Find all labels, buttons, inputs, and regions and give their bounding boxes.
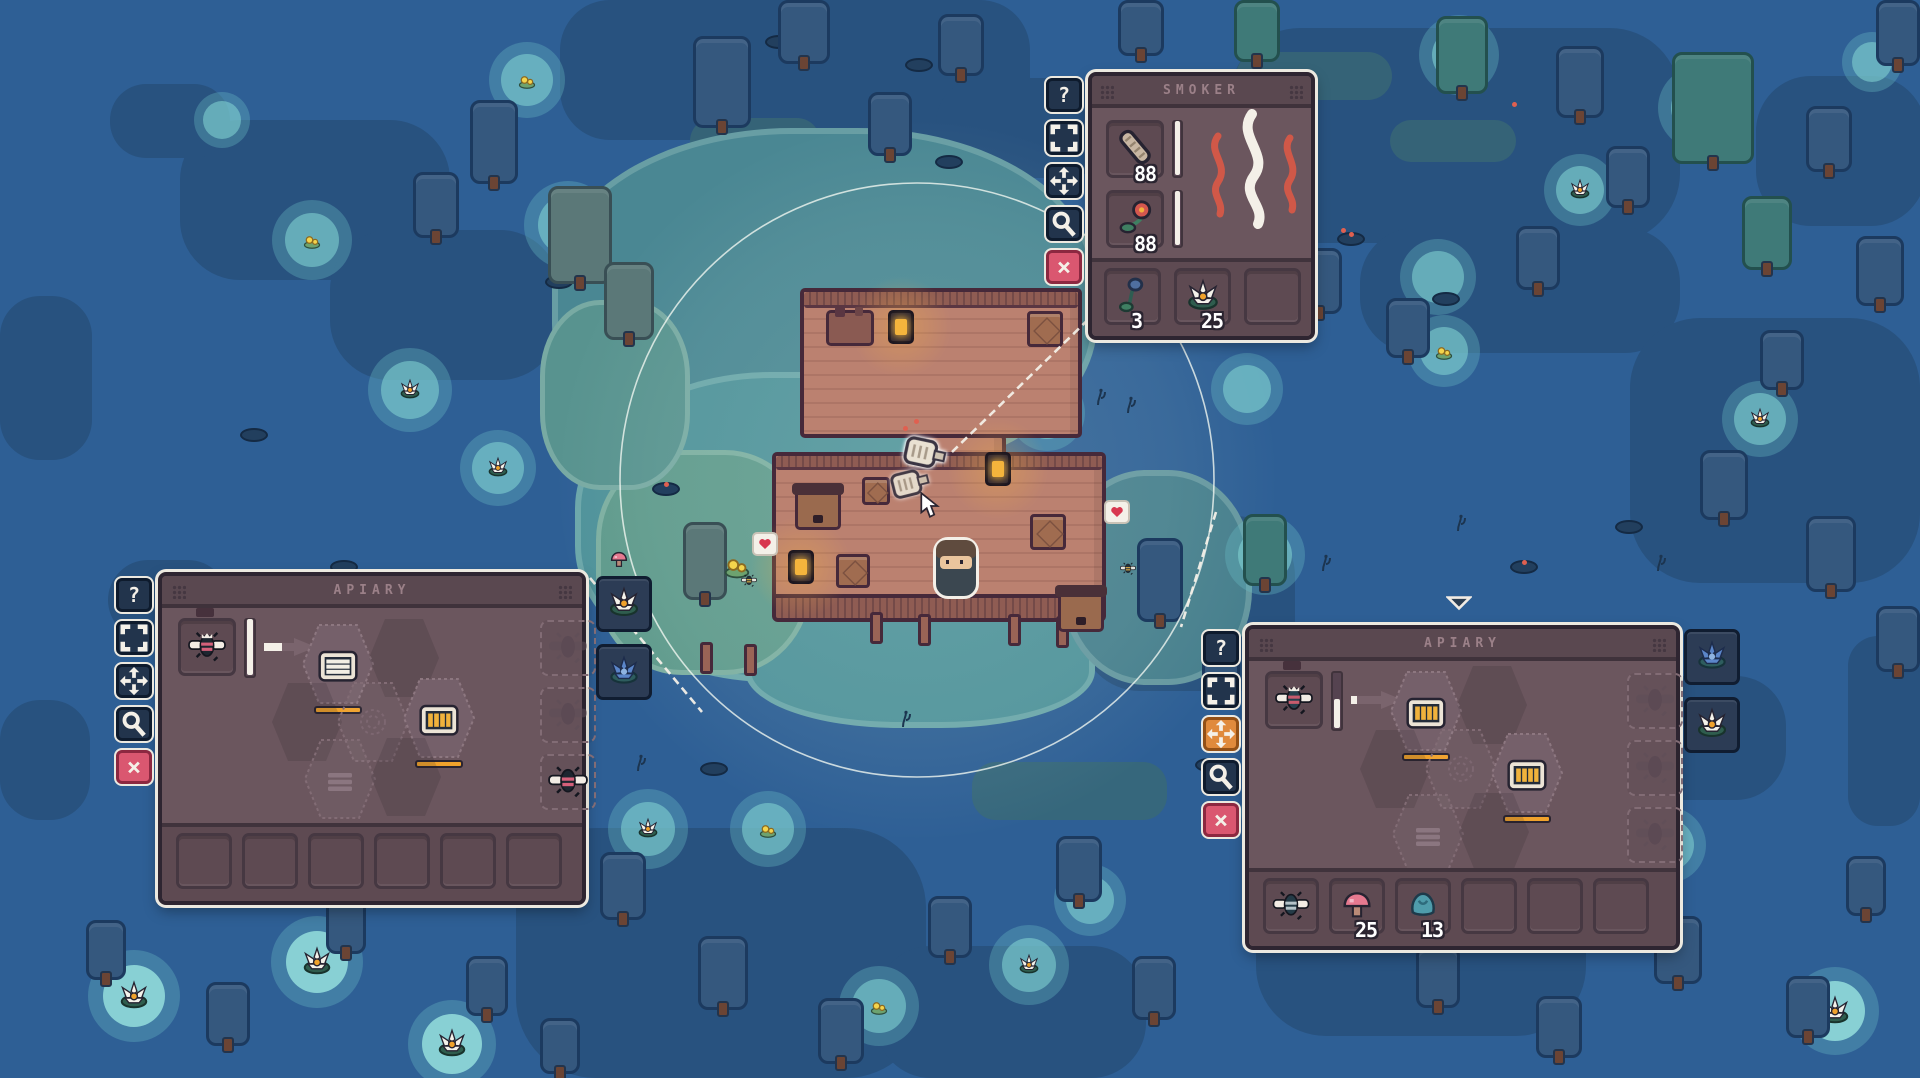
game-viewport: ?×SMOKER8888 325?×APIARY ?×APIARY xyxy=(0,0,1920,1078)
cursor-layer xyxy=(0,0,1920,1078)
smoke-spark xyxy=(914,419,919,424)
map-marker xyxy=(1446,594,1472,616)
mouse-cursor xyxy=(918,492,944,524)
